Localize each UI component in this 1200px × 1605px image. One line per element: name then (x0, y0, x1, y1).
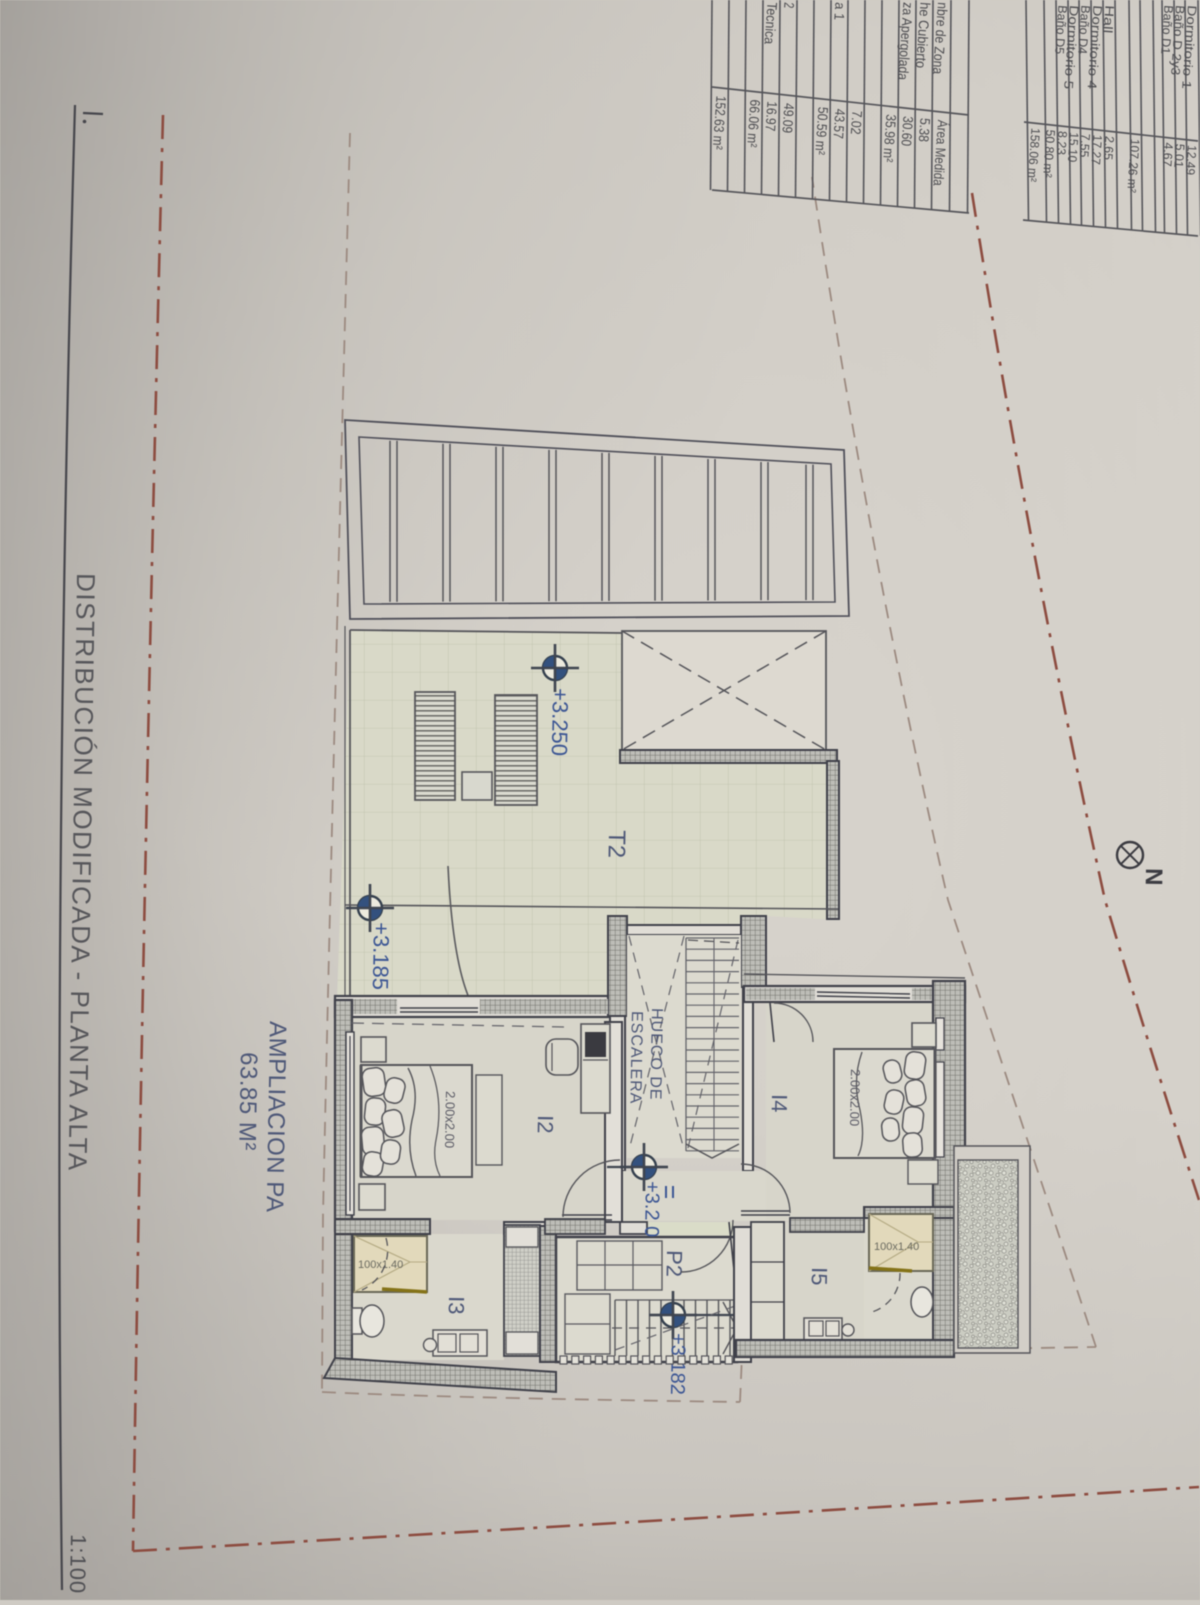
svg-text:100x1.40: 100x1.40 (874, 1241, 919, 1253)
svg-text:I3: I3 (444, 1296, 469, 1315)
svg-text:66.06 m²: 66.06 m² (744, 99, 763, 148)
svg-text:a 1: a 1 (831, 2, 848, 21)
svg-text:+3.2 0: +3.2 0 (640, 1181, 663, 1238)
svg-text:Hall: Hall (1101, 5, 1117, 34)
svg-text:2.65: 2.65 (1101, 136, 1117, 161)
svg-text:7.02: 7.02 (848, 110, 866, 135)
svg-text:1:100: 1:100 (65, 1534, 91, 1594)
svg-text:16.97: 16.97 (762, 101, 780, 132)
svg-text:49.09: 49.09 (779, 103, 797, 134)
svg-text:N: N (1140, 868, 1167, 886)
svg-text:T2: T2 (603, 830, 630, 858)
svg-text:+3.250: +3.250 (547, 688, 573, 756)
svg-text:63.85 M²: 63.85 M² (233, 1052, 262, 1151)
svg-text:HUECO DE: HUECO DE (646, 1008, 665, 1101)
svg-text:2.00x2.00: 2.00x2.00 (442, 1091, 458, 1148)
svg-text:35.98 m²: 35.98 m² (880, 114, 899, 163)
svg-text:100x1.40: 100x1.40 (358, 1259, 403, 1271)
svg-text:12.49: 12.49 (1183, 145, 1199, 176)
svg-text:Tecnica: Tecnica (762, 2, 781, 45)
svg-text:43.57: 43.57 (830, 108, 848, 139)
svg-text:I4: I4 (767, 1094, 792, 1113)
svg-text:I5: I5 (807, 1267, 832, 1286)
svg-text:I2: I2 (533, 1115, 558, 1134)
svg-text:2.00x2.00: 2.00x2.00 (847, 1069, 863, 1126)
svg-text:P2: P2 (662, 1250, 687, 1277)
svg-text:5.38: 5.38 (916, 117, 934, 142)
svg-text:50.59 m²: 50.59 m² (812, 106, 831, 155)
svg-text:ESCALERA: ESCALERA (626, 1011, 645, 1105)
svg-text:+3.185: +3.185 (368, 922, 394, 990)
svg-text:AMPLIACION PA: AMPLIACION PA (261, 1021, 291, 1213)
svg-text:30.60: 30.60 (898, 116, 916, 147)
